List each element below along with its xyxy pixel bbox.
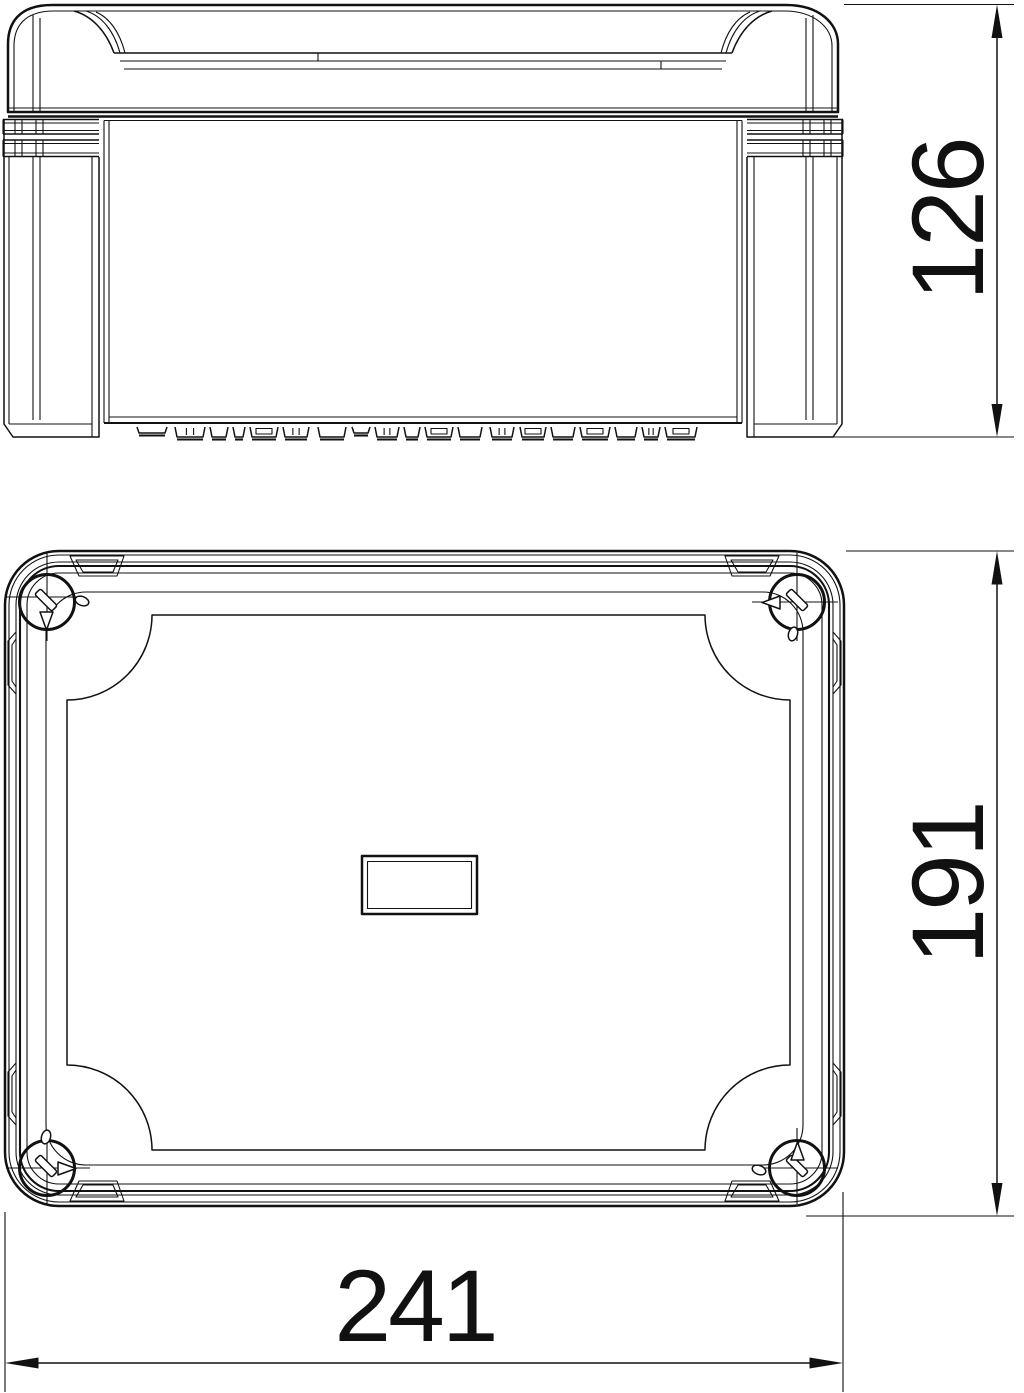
- box-body: [104, 121, 742, 424]
- lid-corner-post-lines: [33, 15, 813, 112]
- plan-view: [5, 551, 844, 1206]
- side-view: [3, 5, 843, 440]
- arrow-marker-icon: [40, 612, 53, 630]
- lid-panel: [67, 615, 790, 1150]
- right-side-latch-wing: [747, 119, 843, 437]
- box-shell: [5, 551, 844, 1206]
- corner-screw-bottom-left: [6, 1129, 90, 1204]
- arrow-up-icon: [992, 551, 1003, 585]
- arrow-left-icon: [5, 1358, 39, 1369]
- dimension-width-241: 241: [5, 1192, 843, 1392]
- dimension-value: 126: [891, 139, 1005, 300]
- arrow-down-icon: [992, 404, 1003, 437]
- dimension-value: 191: [891, 803, 1005, 964]
- arrow-right-icon: [810, 1358, 844, 1369]
- left-side-latch-wing: [3, 119, 99, 437]
- screw-slot-icon: [35, 1155, 58, 1178]
- screw-slot-icon: [35, 589, 58, 612]
- seal-drop-icon: [74, 594, 90, 607]
- technical-drawing: 126 191 241: [0, 0, 1024, 1393]
- lid-recess-tray: [74, 11, 772, 69]
- cable-entry-tabs: [137, 427, 697, 440]
- drawing-canvas: 126 191 241: [0, 0, 1024, 1393]
- arrow-down-icon: [992, 1183, 1003, 1216]
- lid-outline: [8, 5, 838, 112]
- arrow-up-icon: [992, 5, 1003, 39]
- label-field: [362, 856, 477, 914]
- dimension-value: 241: [334, 1249, 495, 1363]
- dimension-height-126: 126: [750, 5, 1014, 438]
